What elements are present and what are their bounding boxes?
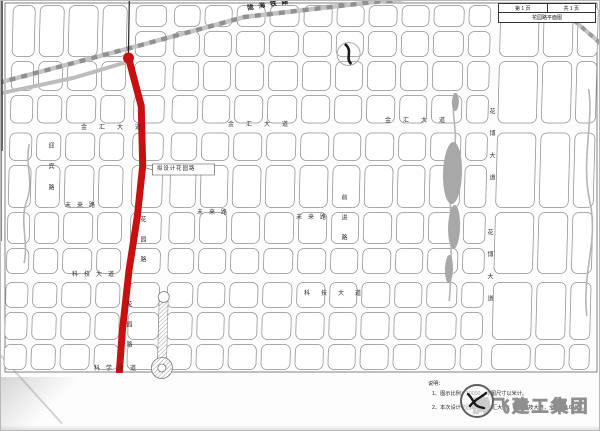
city-block: [397, 166, 425, 208]
city-block: [174, 6, 200, 27]
city-block: [573, 133, 595, 208]
city-block: [361, 313, 390, 340]
city-block: [266, 133, 296, 161]
city-block: [236, 32, 265, 57]
drawing-sheet: 金汇大道 金汇大道 金汇大道 未来路 未来路 未来路 科技大道 科技大道 科学大…: [0, 0, 600, 431]
city-block: [400, 62, 428, 91]
city-block: [469, 6, 491, 27]
city-block: [402, 6, 430, 27]
city-block: [297, 249, 326, 274]
city-block: [66, 96, 96, 124]
city-block: [535, 345, 565, 370]
city-block: [360, 345, 389, 370]
city-block: [168, 249, 194, 274]
city-block: [203, 62, 231, 91]
city-block: [494, 213, 534, 274]
city-block: [68, 6, 98, 57]
city-block: [33, 249, 58, 274]
city-block: [100, 96, 125, 124]
city-block: [232, 166, 261, 208]
city-block: [365, 133, 394, 161]
city-block: [302, 62, 331, 91]
city-block: [128, 313, 159, 340]
city-block: [467, 62, 489, 91]
city-block: [364, 166, 393, 208]
city-block: [269, 32, 299, 57]
city-block: [231, 213, 260, 244]
city-block: [263, 249, 293, 274]
city-block: [197, 283, 225, 308]
city-block: [539, 133, 570, 208]
city-block: [64, 166, 94, 208]
city-block: [60, 345, 90, 370]
city-block: [32, 283, 57, 308]
city-block: [128, 283, 159, 308]
page-total: 共 1 页: [548, 4, 596, 13]
city-block: [369, 6, 398, 27]
city-block: [426, 313, 457, 340]
notes-heading: 说明：: [428, 382, 444, 387]
city-block: [10, 96, 33, 124]
city-block: [268, 62, 298, 91]
city-block: [462, 249, 484, 274]
city-block: [173, 62, 199, 91]
city-block: [99, 133, 124, 161]
road-label-huayuan-2: 花园路: [125, 301, 131, 361]
city-block: [4, 345, 27, 370]
city-block: [7, 213, 30, 244]
city-block: [199, 213, 227, 244]
city-block: [461, 283, 483, 308]
city-block: [465, 133, 487, 161]
city-block: [8, 166, 31, 208]
city-block: [299, 166, 328, 208]
city-block: [394, 283, 422, 308]
city-block: [460, 345, 482, 370]
city-block: [303, 32, 332, 57]
route-callout-label: 拟设计花园路: [157, 167, 195, 172]
scan-edge-left-2: [1, 151, 2, 241]
city-block: [32, 313, 57, 340]
road-label-qianjin: 前进路: [340, 194, 346, 254]
city-block: [363, 213, 392, 244]
company-logo-icon: [460, 384, 494, 418]
road-label-jinhui-3: 金汇大道: [385, 118, 457, 124]
city-block: [233, 133, 262, 161]
city-block: [427, 249, 458, 274]
city-block: [541, 62, 572, 124]
city-block: [464, 166, 487, 208]
road-label-keji-2: 科技大道: [304, 291, 372, 297]
city-block: [5, 313, 28, 340]
road-label-weilai-1: 未来路: [65, 203, 101, 209]
city-block: [466, 96, 488, 124]
city-block: [95, 313, 120, 340]
city-block: [228, 345, 257, 370]
city-block: [31, 345, 56, 370]
road-label-huayuan-1: 花园路: [139, 216, 145, 276]
city-block: [426, 283, 457, 308]
city-block: [461, 313, 483, 340]
city-block: [171, 133, 197, 161]
road-label-kexue: 科学大道: [94, 366, 142, 372]
city-block: [261, 345, 291, 370]
city-block: [63, 213, 93, 244]
city-block: [62, 249, 92, 274]
city-block: [132, 133, 163, 161]
city-block: [34, 213, 59, 244]
city-block: [432, 62, 463, 91]
city-block: [37, 96, 62, 124]
city-block: [202, 96, 230, 124]
city-block: [496, 133, 536, 208]
city-block: [396, 213, 424, 244]
city-block: [5, 283, 28, 308]
city-block: [12, 6, 35, 57]
city-block: [234, 96, 263, 124]
city-block: [136, 6, 167, 27]
city-block: [575, 62, 597, 124]
city-block: [394, 313, 422, 340]
city-block: [491, 345, 530, 370]
city-block: [229, 313, 258, 340]
city-block: [169, 213, 195, 244]
city-block: [97, 213, 122, 244]
city-block: [332, 166, 360, 208]
city-block: [264, 213, 294, 244]
road-centerline-top: [128, 1, 130, 53]
city-block: [229, 283, 258, 308]
road-label-huabo-2: 花博大道: [486, 229, 492, 317]
city-block: [230, 249, 259, 274]
city-block: [262, 283, 292, 308]
road-label-yingbin: 迎宾路: [47, 142, 53, 205]
city-block: [337, 6, 365, 27]
city-block: [295, 345, 324, 370]
city-block: [172, 96, 198, 124]
city-block: [196, 345, 224, 370]
city-block: [204, 32, 232, 57]
road-label-weilai-3: 未来路: [296, 215, 332, 221]
road-label-jinhui-1: 金汇大道: [81, 125, 153, 131]
city-block: [201, 133, 229, 161]
city-block: [433, 32, 464, 57]
city-block: [425, 345, 456, 370]
road-label-jinhui-2: 金汇大道: [228, 122, 300, 128]
city-block: [265, 166, 295, 208]
city-block: [329, 313, 357, 340]
city-block: [65, 133, 95, 161]
city-block: [401, 32, 429, 57]
city-block: [262, 313, 292, 340]
city-block: [468, 32, 490, 57]
city-block: [300, 133, 329, 161]
road-label-huabo-1: 花博大道: [488, 108, 494, 196]
city-block: [95, 283, 120, 308]
city-block: [537, 213, 568, 274]
title-block: 第 1 页 共 1 页 花园路平面图: [498, 3, 596, 23]
city-block: [61, 283, 91, 308]
city-block: [301, 96, 330, 124]
city-block: [98, 166, 123, 208]
city-block: [492, 283, 532, 340]
city-block: [39, 6, 64, 57]
page-number: 第 1 页: [499, 4, 548, 13]
city-block: [334, 96, 362, 124]
city-block: [368, 32, 397, 57]
roundabout-small: [158, 292, 169, 303]
city-block: [267, 96, 297, 124]
city-block: [570, 283, 591, 340]
city-block: [333, 133, 361, 161]
city-block: [395, 249, 423, 274]
city-block: [536, 283, 566, 340]
drawing-title: 花园路平面图: [499, 13, 595, 22]
road-label-weilai-2: 未来路: [197, 210, 233, 216]
city-block: [569, 345, 590, 370]
city-block: [362, 249, 391, 274]
city-block: [571, 213, 593, 274]
city-block: [463, 213, 485, 244]
city-block: [197, 313, 225, 340]
city-block: [498, 62, 538, 124]
scan-edge-bottom: [1, 425, 600, 431]
city-block: [296, 313, 325, 340]
city-block: [270, 6, 300, 27]
city-block: [367, 62, 396, 91]
city-block: [398, 133, 426, 161]
city-block: [198, 249, 226, 274]
scan-edge-left: [1, 1, 3, 151]
city-block: [96, 249, 121, 274]
city-block: [434, 6, 465, 27]
city-block: [61, 313, 91, 340]
city-block: [393, 345, 421, 370]
city-block: [328, 345, 356, 370]
city-block: [167, 283, 193, 308]
city-block: [166, 313, 192, 340]
city-block: [235, 62, 264, 91]
road-label-keji-1: 科技大道: [72, 272, 120, 278]
